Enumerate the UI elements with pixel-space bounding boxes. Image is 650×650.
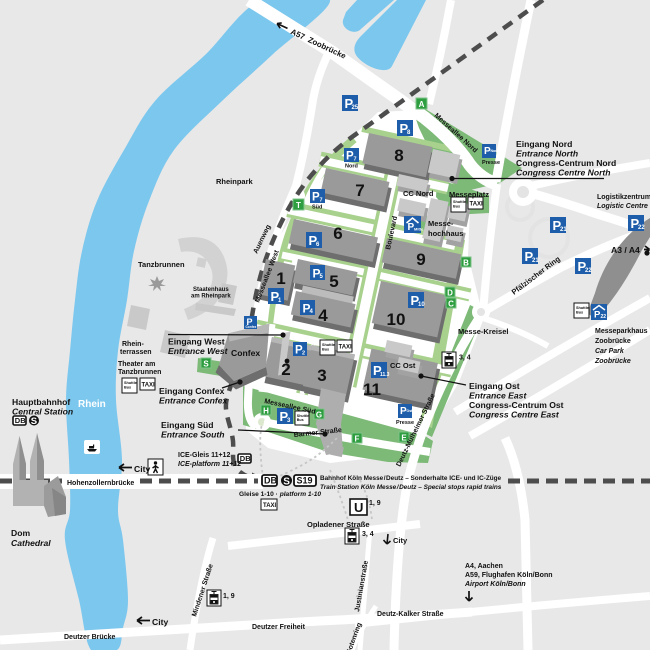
svg-text:25: 25	[352, 105, 359, 111]
svg-text:H: H	[263, 406, 269, 415]
svg-text:Rhein-: Rhein-	[122, 341, 144, 348]
svg-text:Presse: Presse	[482, 160, 500, 166]
svg-text:TAXI: TAXI	[470, 202, 484, 208]
svg-text:Dom: Dom	[11, 528, 30, 538]
svg-text:6: 6	[333, 224, 342, 243]
svg-text:T: T	[296, 201, 301, 210]
svg-text:Bus: Bus	[453, 205, 460, 209]
svg-text:Bus: Bus	[576, 311, 583, 315]
svg-text:9: 9	[416, 250, 425, 269]
svg-text:7: 7	[354, 157, 357, 163]
svg-text:City: City	[152, 617, 168, 627]
svg-text:A: A	[419, 100, 425, 109]
svg-text:22: 22	[585, 268, 592, 274]
svg-text:Logistic Centre: Logistic Centre	[597, 203, 648, 210]
svg-text:Shuttle: Shuttle	[322, 343, 335, 347]
svg-text:3, 4: 3, 4	[362, 531, 374, 538]
svg-text:Mitte: Mitte	[414, 227, 424, 232]
svg-text:Entrance East: Entrance East	[469, 391, 527, 401]
svg-text:Car Park: Car Park	[595, 348, 625, 355]
svg-text:Tanzbrunnen: Tanzbrunnen	[138, 260, 185, 269]
svg-text:CC Nord: CC Nord	[403, 189, 434, 198]
svg-text:B: B	[463, 258, 469, 267]
svg-text:Airport Köln/Bonn: Airport Köln/Bonn	[464, 581, 526, 588]
svg-text:G: G	[316, 410, 322, 419]
svg-text:S: S	[203, 359, 209, 368]
svg-text:Messe-: Messe-	[428, 219, 454, 228]
svg-text:am Rheinpark: am Rheinpark	[191, 294, 231, 300]
svg-text:Hohenzollernbrücke: Hohenzollernbrücke	[67, 480, 134, 487]
svg-text:Eingang Süd: Eingang Süd	[161, 420, 214, 430]
svg-text:3, 4: 3, 4	[459, 355, 471, 362]
svg-text:S19: S19	[297, 476, 313, 486]
svg-text:Eingang Nord: Eingang Nord	[516, 139, 572, 149]
svg-text:Central Station: Central Station	[12, 407, 73, 417]
svg-text:Bus: Bus	[124, 386, 131, 390]
svg-text:Congress Centre North: Congress Centre North	[516, 168, 611, 178]
svg-text:Confex: Confex	[231, 348, 260, 358]
svg-text:10: 10	[387, 310, 406, 329]
svg-text:Staatenhaus: Staatenhaus	[193, 287, 229, 293]
svg-text:Nord: Nord	[345, 164, 358, 170]
svg-text:Congress-Centrum Ost: Congress-Centrum Ost	[469, 400, 564, 410]
svg-text:Zoobrücke: Zoobrücke	[595, 338, 631, 345]
svg-text:Bus: Bus	[297, 418, 304, 422]
svg-text:City: City	[134, 464, 150, 474]
svg-text:A4, Aachen: A4, Aachen	[465, 563, 503, 570]
svg-text:Hauptbahnhof: Hauptbahnhof	[12, 397, 70, 407]
svg-text:Shuttle: Shuttle	[453, 200, 466, 204]
svg-text:DB: DB	[264, 476, 277, 486]
svg-text:10: 10	[418, 302, 425, 308]
svg-text:DB: DB	[240, 454, 251, 463]
svg-text:CC Ost: CC Ost	[390, 361, 416, 370]
svg-text:TAXI: TAXI	[263, 503, 277, 509]
svg-text:Entrance South: Entrance South	[161, 430, 225, 440]
svg-text:7: 7	[355, 181, 364, 200]
svg-text:U: U	[354, 500, 363, 515]
svg-text:4: 4	[318, 306, 328, 325]
svg-text:Train Station Köln Messe / Deu: Train Station Köln Messe / Deutz – Speci…	[320, 484, 502, 491]
svg-text:1, 9: 1, 9	[369, 500, 381, 507]
svg-text:Nord: Nord	[491, 149, 499, 153]
svg-text:Ost: Ost	[407, 409, 414, 413]
svg-text:City: City	[393, 536, 408, 545]
svg-text:2: 2	[302, 351, 305, 357]
svg-text:D: D	[447, 288, 453, 297]
svg-text:Entrance West: Entrance West	[168, 346, 229, 356]
svg-text:Theater am: Theater am	[118, 361, 155, 368]
svg-text:Bus: Bus	[322, 348, 329, 352]
svg-text:Zoobrücke: Zoobrücke	[594, 358, 631, 365]
svg-text:Deutz-Kalker Straße: Deutz-Kalker Straße	[377, 611, 444, 618]
svg-text:ICE-Gleis 11+12: ICE-Gleis 11+12	[178, 452, 230, 459]
svg-text:Deutzer Freiheit: Deutzer Freiheit	[252, 624, 306, 631]
svg-text:S: S	[283, 476, 290, 487]
svg-text:hochhaus: hochhaus	[428, 229, 463, 238]
svg-text:A59, Flughafen Köln/Bonn: A59, Flughafen Köln/Bonn	[465, 572, 553, 579]
svg-text:Opladener Straße: Opladener Straße	[307, 520, 370, 529]
svg-text:Messe-Kreisel: Messe-Kreisel	[458, 327, 508, 336]
svg-text:Congress Centre East: Congress Centre East	[469, 410, 560, 420]
svg-text:C: C	[448, 299, 454, 308]
svg-text:3: 3	[317, 366, 326, 385]
svg-text:Deutzer Brücke: Deutzer Brücke	[64, 634, 115, 641]
svg-text:1: 1	[276, 269, 285, 288]
svg-text:Eingang Confex: Eingang Confex	[159, 386, 225, 396]
svg-text:Entrance Confex: Entrance Confex	[159, 396, 229, 406]
svg-text:Messeplatz: Messeplatz	[449, 190, 489, 199]
svg-text:Logistikzentrum: Logistikzentrum	[597, 194, 650, 201]
svg-text:Bahnhof Köln Messe / Deutz – S: Bahnhof Köln Messe / Deutz – Sonderhalte…	[320, 475, 502, 482]
svg-text:Eingang West: Eingang West	[168, 337, 225, 347]
svg-text:Süd: Süd	[312, 205, 322, 211]
svg-text:Presse: Presse	[396, 420, 414, 426]
svg-text:Confex: Confex	[246, 325, 257, 329]
svg-text:ICE-platform 11+12: ICE-platform 11+12	[178, 461, 241, 468]
svg-text:Gleise 1-10 · platform 1-10: Gleise 1-10 · platform 1-10	[239, 491, 321, 498]
svg-text:7: 7	[320, 198, 323, 204]
svg-text:22: 22	[601, 314, 607, 320]
svg-text:21: 21	[560, 227, 567, 233]
svg-text:11.3: 11.3	[380, 372, 390, 378]
svg-text:5: 5	[329, 272, 338, 291]
svg-text:terrassen: terrassen	[120, 349, 152, 356]
svg-text:8: 8	[394, 146, 403, 165]
svg-text:TAXI: TAXI	[142, 383, 156, 389]
svg-text:A3 / A4: A3 / A4	[611, 245, 640, 255]
svg-text:Shuttle: Shuttle	[576, 306, 589, 310]
svg-text:Eingang Ost: Eingang Ost	[469, 381, 520, 391]
svg-text:DB: DB	[15, 416, 26, 425]
svg-text:F: F	[355, 434, 360, 443]
svg-text:Rhein: Rhein	[78, 399, 106, 410]
svg-text:Cathedral: Cathedral	[11, 538, 51, 548]
svg-text:22: 22	[638, 225, 645, 231]
svg-text:1, 9: 1, 9	[223, 593, 235, 600]
svg-text:11: 11	[363, 380, 381, 399]
svg-text:Tanzbrunnen: Tanzbrunnen	[118, 369, 161, 376]
svg-text:21: 21	[532, 258, 539, 264]
svg-text:Rheinpark: Rheinpark	[216, 177, 254, 186]
svg-text:Shuttle: Shuttle	[124, 381, 137, 385]
svg-text:S: S	[31, 416, 37, 427]
svg-text:Entrance North: Entrance North	[516, 149, 578, 159]
svg-text:Congress-Centrum Nord: Congress-Centrum Nord	[516, 158, 616, 168]
svg-text:TAXI: TAXI	[339, 345, 353, 351]
svg-text:Messeparkhaus: Messeparkhaus	[595, 328, 648, 335]
